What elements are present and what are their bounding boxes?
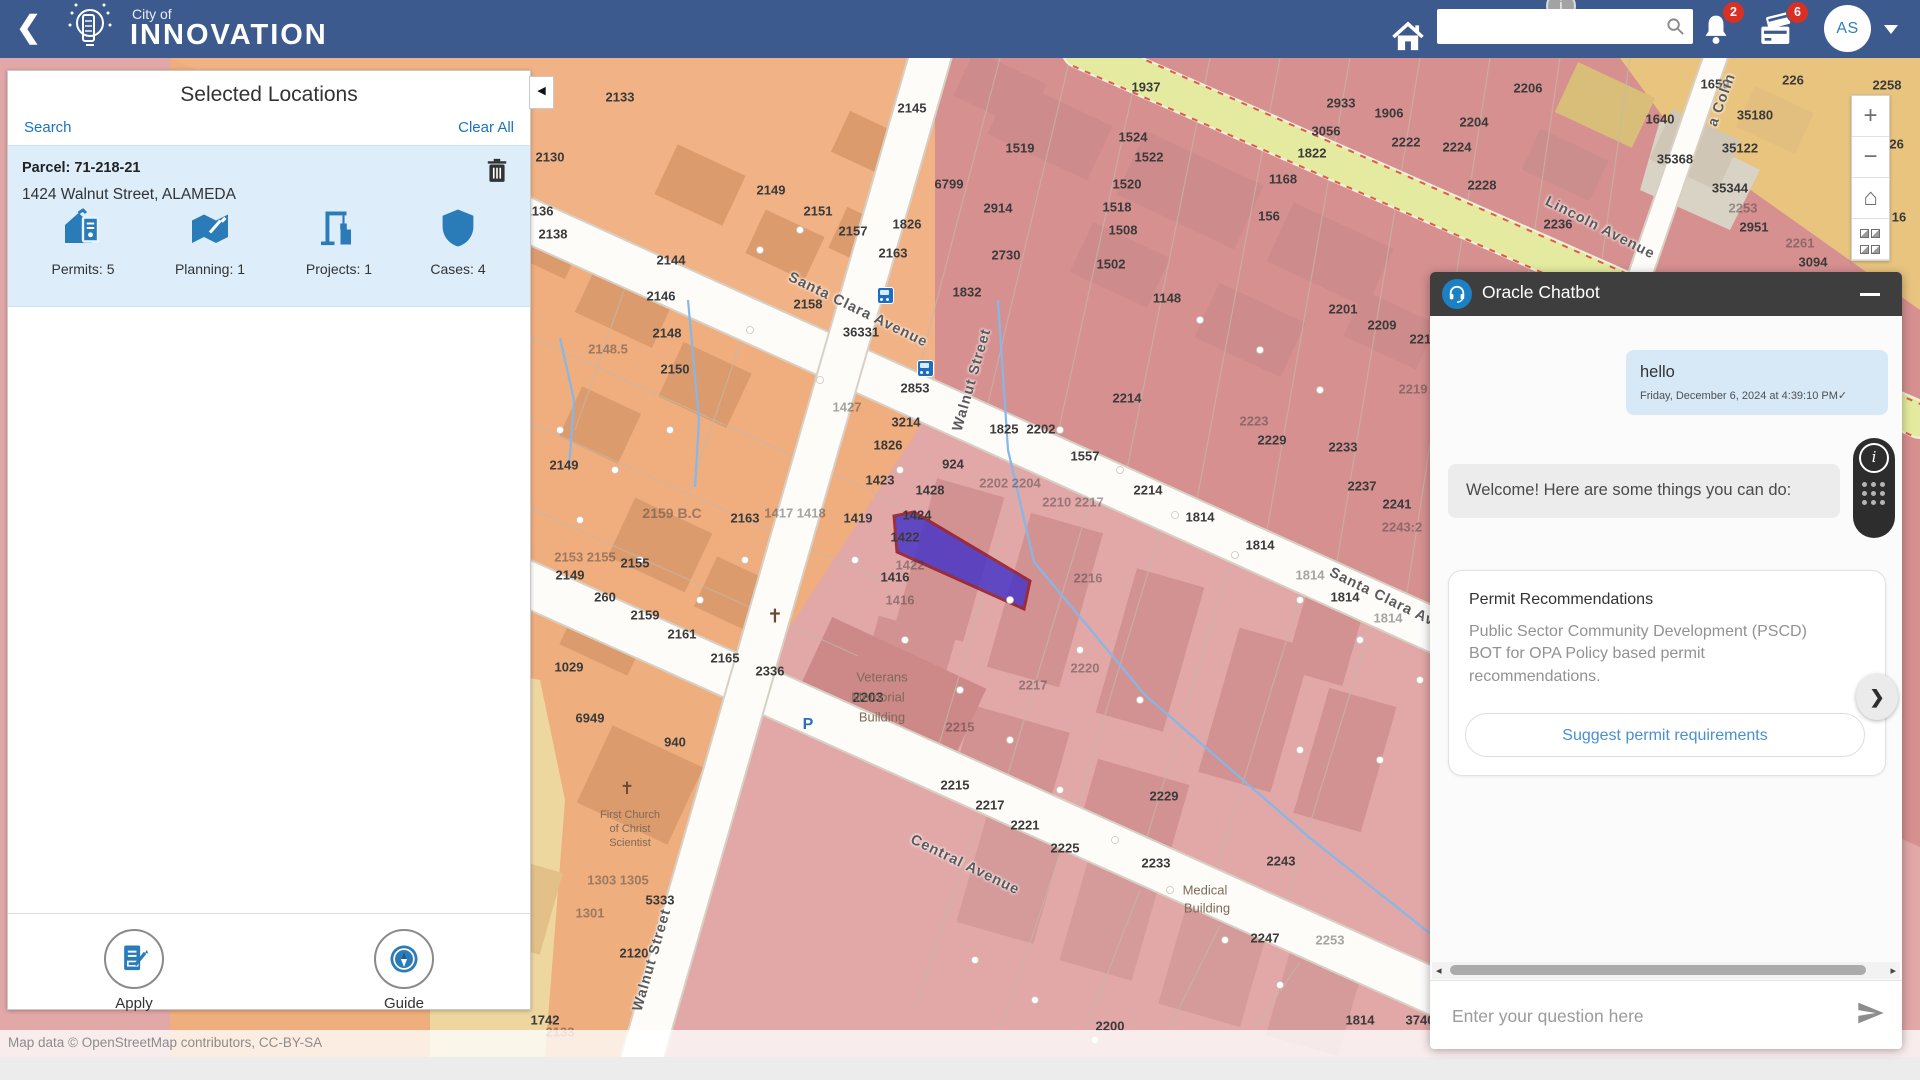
back-button[interactable]: ❮ bbox=[16, 10, 41, 45]
avatar[interactable]: AS bbox=[1824, 5, 1871, 52]
guide-label: Guide bbox=[344, 995, 464, 1012]
zoom-out-button[interactable]: − bbox=[1852, 137, 1889, 178]
user-message-text: hello bbox=[1640, 363, 1874, 382]
chatbot-side-toolbar: i bbox=[1853, 438, 1895, 538]
user-message-bubble: hello Friday, December 6, 2024 at 4:39:1… bbox=[1626, 350, 1888, 415]
user-message-timestamp: Friday, December 6, 2024 at 4:39:10 PM✓ bbox=[1640, 389, 1874, 402]
permit-recommendations-card: Permit Recommendations Public Sector Com… bbox=[1448, 570, 1886, 776]
next-card-arrow-button[interactable]: ❯ bbox=[1856, 674, 1898, 720]
chatbot-title: Oracle Chatbot bbox=[1482, 282, 1600, 303]
brand-line2: INNOVATION bbox=[130, 19, 328, 52]
clear-all-link[interactable]: Clear All bbox=[458, 119, 514, 136]
planning-icon bbox=[189, 208, 231, 248]
stat-projects[interactable]: Projects: 1 bbox=[284, 208, 394, 277]
panel-collapse-button[interactable]: ◀ bbox=[529, 76, 554, 109]
top-navigation-bar: ❮ City of INNOVATION i bbox=[0, 0, 1920, 58]
parcel-number: Parcel: 71-218-21 bbox=[22, 160, 141, 176]
search-icon[interactable] bbox=[1666, 17, 1685, 36]
bot-message-text: Welcome! Here are some things you can do… bbox=[1466, 479, 1822, 503]
stat-planning[interactable]: Planning: 1 bbox=[155, 208, 265, 277]
suggest-permit-requirements-button[interactable]: Suggest permit requirements bbox=[1465, 713, 1865, 757]
guide-compass-icon bbox=[388, 943, 420, 975]
basemap-button[interactable] bbox=[1852, 219, 1889, 260]
apply-document-icon bbox=[119, 943, 149, 975]
stat-planning-label: Planning: 1 bbox=[155, 261, 265, 277]
delete-parcel-trash-icon[interactable] bbox=[486, 158, 508, 184]
bot-message-bubble: Welcome! Here are some things you can do… bbox=[1448, 464, 1840, 518]
send-icon[interactable] bbox=[1856, 999, 1886, 1027]
notifications-badge: 2 bbox=[1722, 1, 1745, 24]
chatbot-horizontal-scrollbar[interactable]: ◂ ▸ bbox=[1432, 962, 1900, 979]
chatbot-header: Oracle Chatbot bbox=[1430, 272, 1902, 316]
chatbot-minimize-button[interactable] bbox=[1860, 293, 1880, 296]
scrollbar-thumb[interactable] bbox=[1450, 965, 1866, 975]
stat-permits[interactable]: Permits: 5 bbox=[28, 208, 138, 277]
page-bottom-strip bbox=[0, 1057, 1920, 1080]
apply-label: Apply bbox=[74, 995, 194, 1012]
apply-button[interactable]: Apply bbox=[74, 929, 194, 1012]
city-logo-bulb-icon bbox=[62, 1, 118, 57]
guide-button[interactable]: Guide bbox=[344, 929, 464, 1012]
global-search-box bbox=[1437, 9, 1693, 44]
panel-divider bbox=[8, 913, 530, 914]
global-search-input[interactable] bbox=[1445, 11, 1664, 44]
cases-shield-icon bbox=[439, 208, 477, 248]
panel-title: Selected Locations bbox=[8, 83, 530, 107]
parcel-address: 1424 Walnut Street, ALAMEDA bbox=[22, 186, 236, 204]
scroll-left-arrow[interactable]: ◂ bbox=[1436, 964, 1442, 977]
chatbot-input-area bbox=[1430, 980, 1902, 1049]
app-window: 21332130213621382144214621482148.5215021… bbox=[0, 0, 1920, 1080]
stat-projects-label: Projects: 1 bbox=[284, 261, 394, 277]
payments-badge: 6 bbox=[1786, 1, 1809, 24]
permits-icon bbox=[62, 208, 104, 248]
stat-permits-label: Permits: 5 bbox=[28, 261, 138, 277]
stat-cases[interactable]: Cases: 4 bbox=[403, 208, 513, 277]
projects-icon bbox=[318, 208, 360, 248]
parcel-card[interactable]: Parcel: 71-218-21 1424 Walnut Street, AL… bbox=[8, 145, 530, 307]
selected-locations-panel: Selected Locations Search Clear All Parc… bbox=[7, 70, 531, 1010]
search-link[interactable]: Search bbox=[24, 119, 72, 136]
info-icon[interactable]: i bbox=[1859, 443, 1889, 473]
home-icon[interactable] bbox=[1390, 21, 1426, 53]
card-title: Permit Recommendations bbox=[1469, 591, 1653, 609]
avatar-menu-caret-icon[interactable] bbox=[1884, 25, 1898, 34]
map-controls: + − ⌂ bbox=[1851, 95, 1890, 261]
stat-cases-label: Cases: 4 bbox=[403, 261, 513, 277]
zoom-in-button[interactable]: + bbox=[1852, 96, 1889, 137]
card-body: Public Sector Community Development (PSC… bbox=[1469, 621, 1829, 688]
attribution-text: Map data © OpenStreetMap contributors, C… bbox=[8, 1035, 322, 1050]
scroll-right-arrow[interactable]: ▸ bbox=[1890, 964, 1896, 977]
oracle-chatbot-panel: Oracle Chatbot hello Friday, December 6,… bbox=[1430, 272, 1902, 1048]
chatbot-question-input[interactable] bbox=[1450, 997, 1824, 1035]
default-extent-button[interactable]: ⌂ bbox=[1852, 178, 1889, 219]
chatbot-headset-icon bbox=[1442, 279, 1472, 309]
keypad-dots-icon[interactable] bbox=[1862, 482, 1885, 505]
basemap-icon bbox=[1860, 229, 1869, 238]
